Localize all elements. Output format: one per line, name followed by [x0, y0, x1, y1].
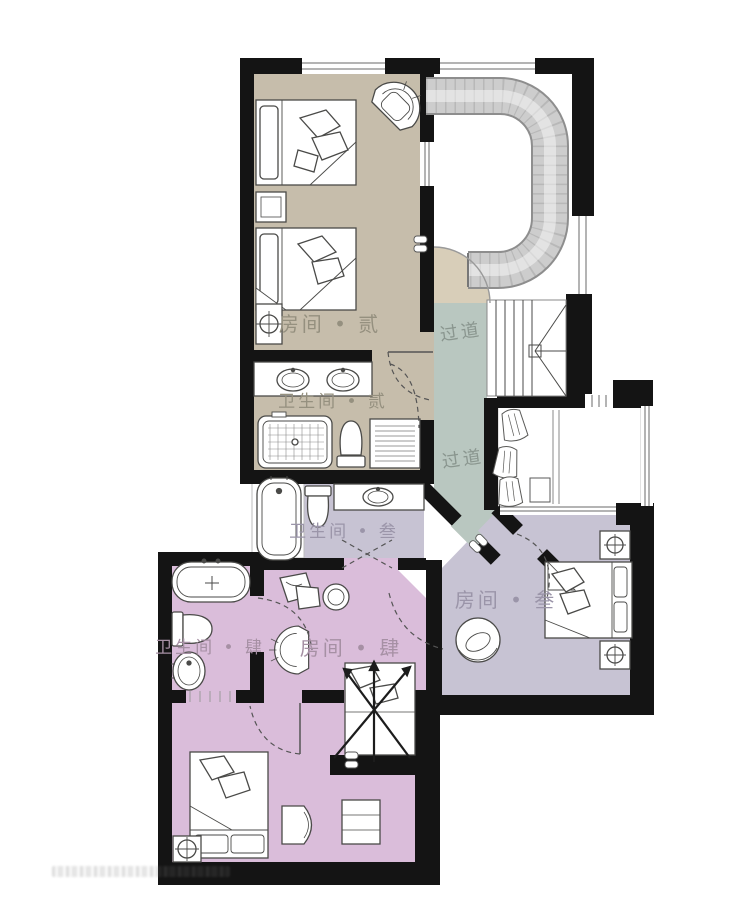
room2-label: 房间 • 贰	[279, 312, 382, 336]
cabinet	[342, 800, 380, 844]
window-room2-right	[422, 142, 432, 186]
bath2-label: 卫生间 • 贰	[278, 392, 388, 412]
double-bed	[190, 752, 268, 858]
window-top-right	[440, 58, 535, 74]
door-gap	[420, 332, 434, 420]
window-top-left	[302, 58, 385, 74]
freestanding-tub	[172, 559, 250, 602]
vanity-double-sink	[254, 362, 372, 396]
floor-plan: 房间 • 贰 卫生间 • 贰 过道 过道 卫生间 • 叁 房间 • 叁 卫生间 …	[0, 0, 750, 900]
double-bed	[545, 562, 632, 638]
vanity-sink	[334, 484, 424, 510]
bath3-label: 卫生间 • 叁	[289, 522, 399, 542]
bath4-label: 卫生间 • 肆	[155, 638, 265, 658]
staircase	[487, 300, 566, 396]
door-gap	[186, 690, 236, 703]
window-right-upper	[574, 216, 592, 294]
bed	[256, 228, 356, 310]
watermark	[52, 866, 230, 877]
jacuzzi-tub	[258, 412, 332, 468]
shower	[370, 419, 420, 468]
nightstand	[600, 531, 630, 559]
window-stair-bottom	[585, 394, 613, 408]
round-stool	[323, 584, 349, 610]
round-chair	[456, 618, 500, 662]
room3-label: 房间 • 叁	[455, 588, 558, 612]
bed	[256, 100, 356, 185]
ceiling-lamp-icon	[173, 836, 201, 862]
storage-box	[530, 478, 550, 502]
nightstand	[256, 192, 286, 222]
room4-label: 房间 • 肆	[300, 636, 403, 660]
window-alcove-right	[641, 406, 653, 506]
nightstand	[282, 806, 312, 844]
nightstand	[600, 641, 630, 669]
single-bed-crossed	[334, 662, 415, 762]
bathtub	[257, 476, 301, 560]
